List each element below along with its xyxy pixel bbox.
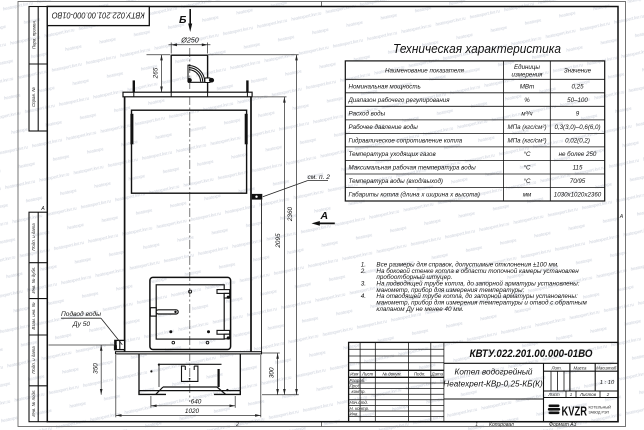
svg-text:Лист: Лист: [361, 372, 374, 377]
svg-text:Справ. №: Справ. №: [31, 87, 36, 107]
svg-text:МВт: МВт: [520, 84, 534, 91]
svg-text:Подвод воды: Подвод воды: [61, 310, 101, 318]
svg-text:Взам. инв. №: Взам. инв. №: [31, 302, 36, 329]
svg-text:Наименование показателя: Наименование показателя: [385, 68, 465, 75]
svg-text:Копировал: Копировал: [489, 422, 514, 428]
svg-text:9: 9: [576, 111, 580, 118]
svg-text:КОТЕЛЬНЫЙ: КОТЕЛЬНЫЙ: [589, 406, 612, 410]
svg-text:Дата: Дата: [431, 372, 444, 377]
svg-text:Котел водогрейный: Котел водогрейный: [455, 368, 533, 377]
svg-text:А: А: [320, 210, 329, 222]
svg-text:2095: 2095: [275, 233, 282, 249]
svg-text:KVZR: KVZR: [562, 404, 588, 419]
svg-text:265: 265: [153, 67, 160, 79]
svg-text:1020: 1020: [185, 408, 200, 415]
svg-text:Максимальная рабочая температу: Максимальная рабочая температура воды: [349, 165, 477, 172]
svg-text:%: %: [524, 97, 530, 104]
svg-text:Единицы: Единицы: [514, 64, 540, 71]
svg-text:А: А: [619, 214, 624, 220]
svg-text:4.: 4.: [361, 293, 366, 300]
svg-text:Нач.отд.: Нач.отд.: [350, 400, 369, 405]
svg-text:2.: 2.: [360, 268, 366, 275]
svg-text:Температура воды (вход/выход): Температура воды (вход/выход): [349, 178, 443, 185]
svg-text:№ докум.: № докум.: [382, 372, 401, 377]
svg-text:Heatexpert-КВр-0,25-КБ(К): Heatexpert-КВр-0,25-КБ(К): [443, 380, 543, 389]
svg-text:МПа (кгс/см²): МПа (кгс/см²): [507, 124, 546, 131]
svg-text:Масштаб: Масштаб: [596, 365, 617, 370]
svg-text:мм: мм: [523, 192, 532, 199]
svg-text:°С: °С: [524, 178, 531, 185]
svg-text:Диапазон рабочего регулировани: Диапазон рабочего регулирования: [348, 97, 451, 104]
svg-text:ЗАВОД РЭП: ЗАВОД РЭП: [589, 411, 610, 415]
svg-text:Значение: Значение: [564, 68, 592, 75]
svg-text:Изм: Изм: [350, 372, 358, 377]
svg-text:0,3(3,0)–0,6(6,0): 0,3(3,0)–0,6(6,0): [554, 124, 600, 131]
svg-text:контр.: контр.: [352, 389, 366, 394]
svg-text:измерения: измерения: [512, 72, 544, 79]
svg-text:А: А: [40, 206, 45, 212]
svg-text:Ду 50: Ду 50: [72, 321, 91, 328]
svg-text:Подп. и дата: Подп. и дата: [31, 223, 36, 251]
svg-text:2360: 2360: [287, 206, 294, 222]
svg-text:Номинальная мощность: Номинальная мощность: [349, 84, 421, 91]
svg-text:см. п. 2: см. п. 2: [308, 174, 331, 181]
svg-text:Инв.: Инв.: [350, 411, 359, 416]
svg-text:КВТУ.022.201.00.000-01ВО: КВТУ.022.201.00.000-01ВО: [51, 11, 144, 21]
svg-text:Габариты котла (длина х ширина: Габариты котла (длина х ширина х высота): [349, 192, 480, 199]
svg-text:350: 350: [92, 363, 99, 374]
svg-text:Проб.: Проб.: [350, 383, 362, 388]
svg-text:Инв. № подл.: Инв. № подл.: [31, 389, 36, 416]
svg-text:640: 640: [191, 398, 202, 405]
svg-text:Инв. № дубл.: Инв. № дубл.: [31, 266, 36, 293]
svg-text:Лит.: Лит.: [551, 365, 562, 370]
svg-text:КВТУ.022.201.00.000-01ВО: КВТУ.022.201.00.000-01ВО: [470, 348, 593, 360]
svg-text:Масса: Масса: [574, 365, 588, 370]
svg-text:°С: °С: [524, 165, 531, 172]
svg-text:м³/ч: м³/ч: [521, 111, 533, 118]
svg-text:не более 250: не более 250: [559, 151, 597, 158]
svg-text:Листов: Листов: [579, 392, 597, 397]
svg-text:Температура уходящих газов: Температура уходящих газов: [349, 151, 437, 158]
svg-text:Формат А3: Формат А3: [549, 422, 577, 428]
svg-text:1030х1020х2360: 1030х1020х2360: [554, 192, 602, 199]
svg-text:Лист: Лист: [547, 392, 560, 397]
svg-text:Разраб.: Разраб.: [350, 378, 366, 383]
svg-text:Подп.: Подп.: [414, 372, 426, 377]
svg-text:2: 2: [606, 392, 610, 397]
svg-text:Б: Б: [179, 14, 187, 26]
svg-text:3.: 3.: [361, 281, 366, 288]
svg-text:1 : 10: 1 : 10: [600, 380, 615, 386]
svg-text:Подп. и дата: Подп. и дата: [31, 346, 36, 374]
svg-text:МПа (кгс/см²): МПа (кгс/см²): [507, 138, 546, 145]
svg-text:Гидравлическое сопротивление к: Гидравлическое сопротивление котла: [349, 138, 463, 145]
svg-text:°С: °С: [524, 151, 531, 158]
svg-text:Расход воды: Расход воды: [349, 111, 386, 118]
svg-text:1: 1: [475, 422, 478, 428]
svg-text:Рабочее давление воды: Рабочее давление воды: [349, 124, 419, 131]
svg-text:50–100: 50–100: [567, 97, 588, 104]
svg-text:115: 115: [573, 165, 583, 172]
svg-text:Ø250: Ø250: [180, 36, 199, 45]
svg-text:Н. контр.: Н. контр.: [350, 406, 370, 411]
svg-text:70/95: 70/95: [570, 178, 586, 185]
svg-text:Техническая характеристика: Техническая характеристика: [393, 41, 561, 56]
svg-text:2: 2: [235, 422, 239, 428]
svg-text:0,02(0,2): 0,02(0,2): [565, 138, 590, 145]
svg-text:0,25: 0,25: [571, 84, 584, 91]
svg-text:клапаном Ду не менее 40 мм.: клапаном Ду не менее 40 мм.: [376, 306, 463, 313]
svg-text:300: 300: [268, 367, 275, 378]
svg-text:Перв. примен.: Перв. примен.: [32, 20, 37, 49]
